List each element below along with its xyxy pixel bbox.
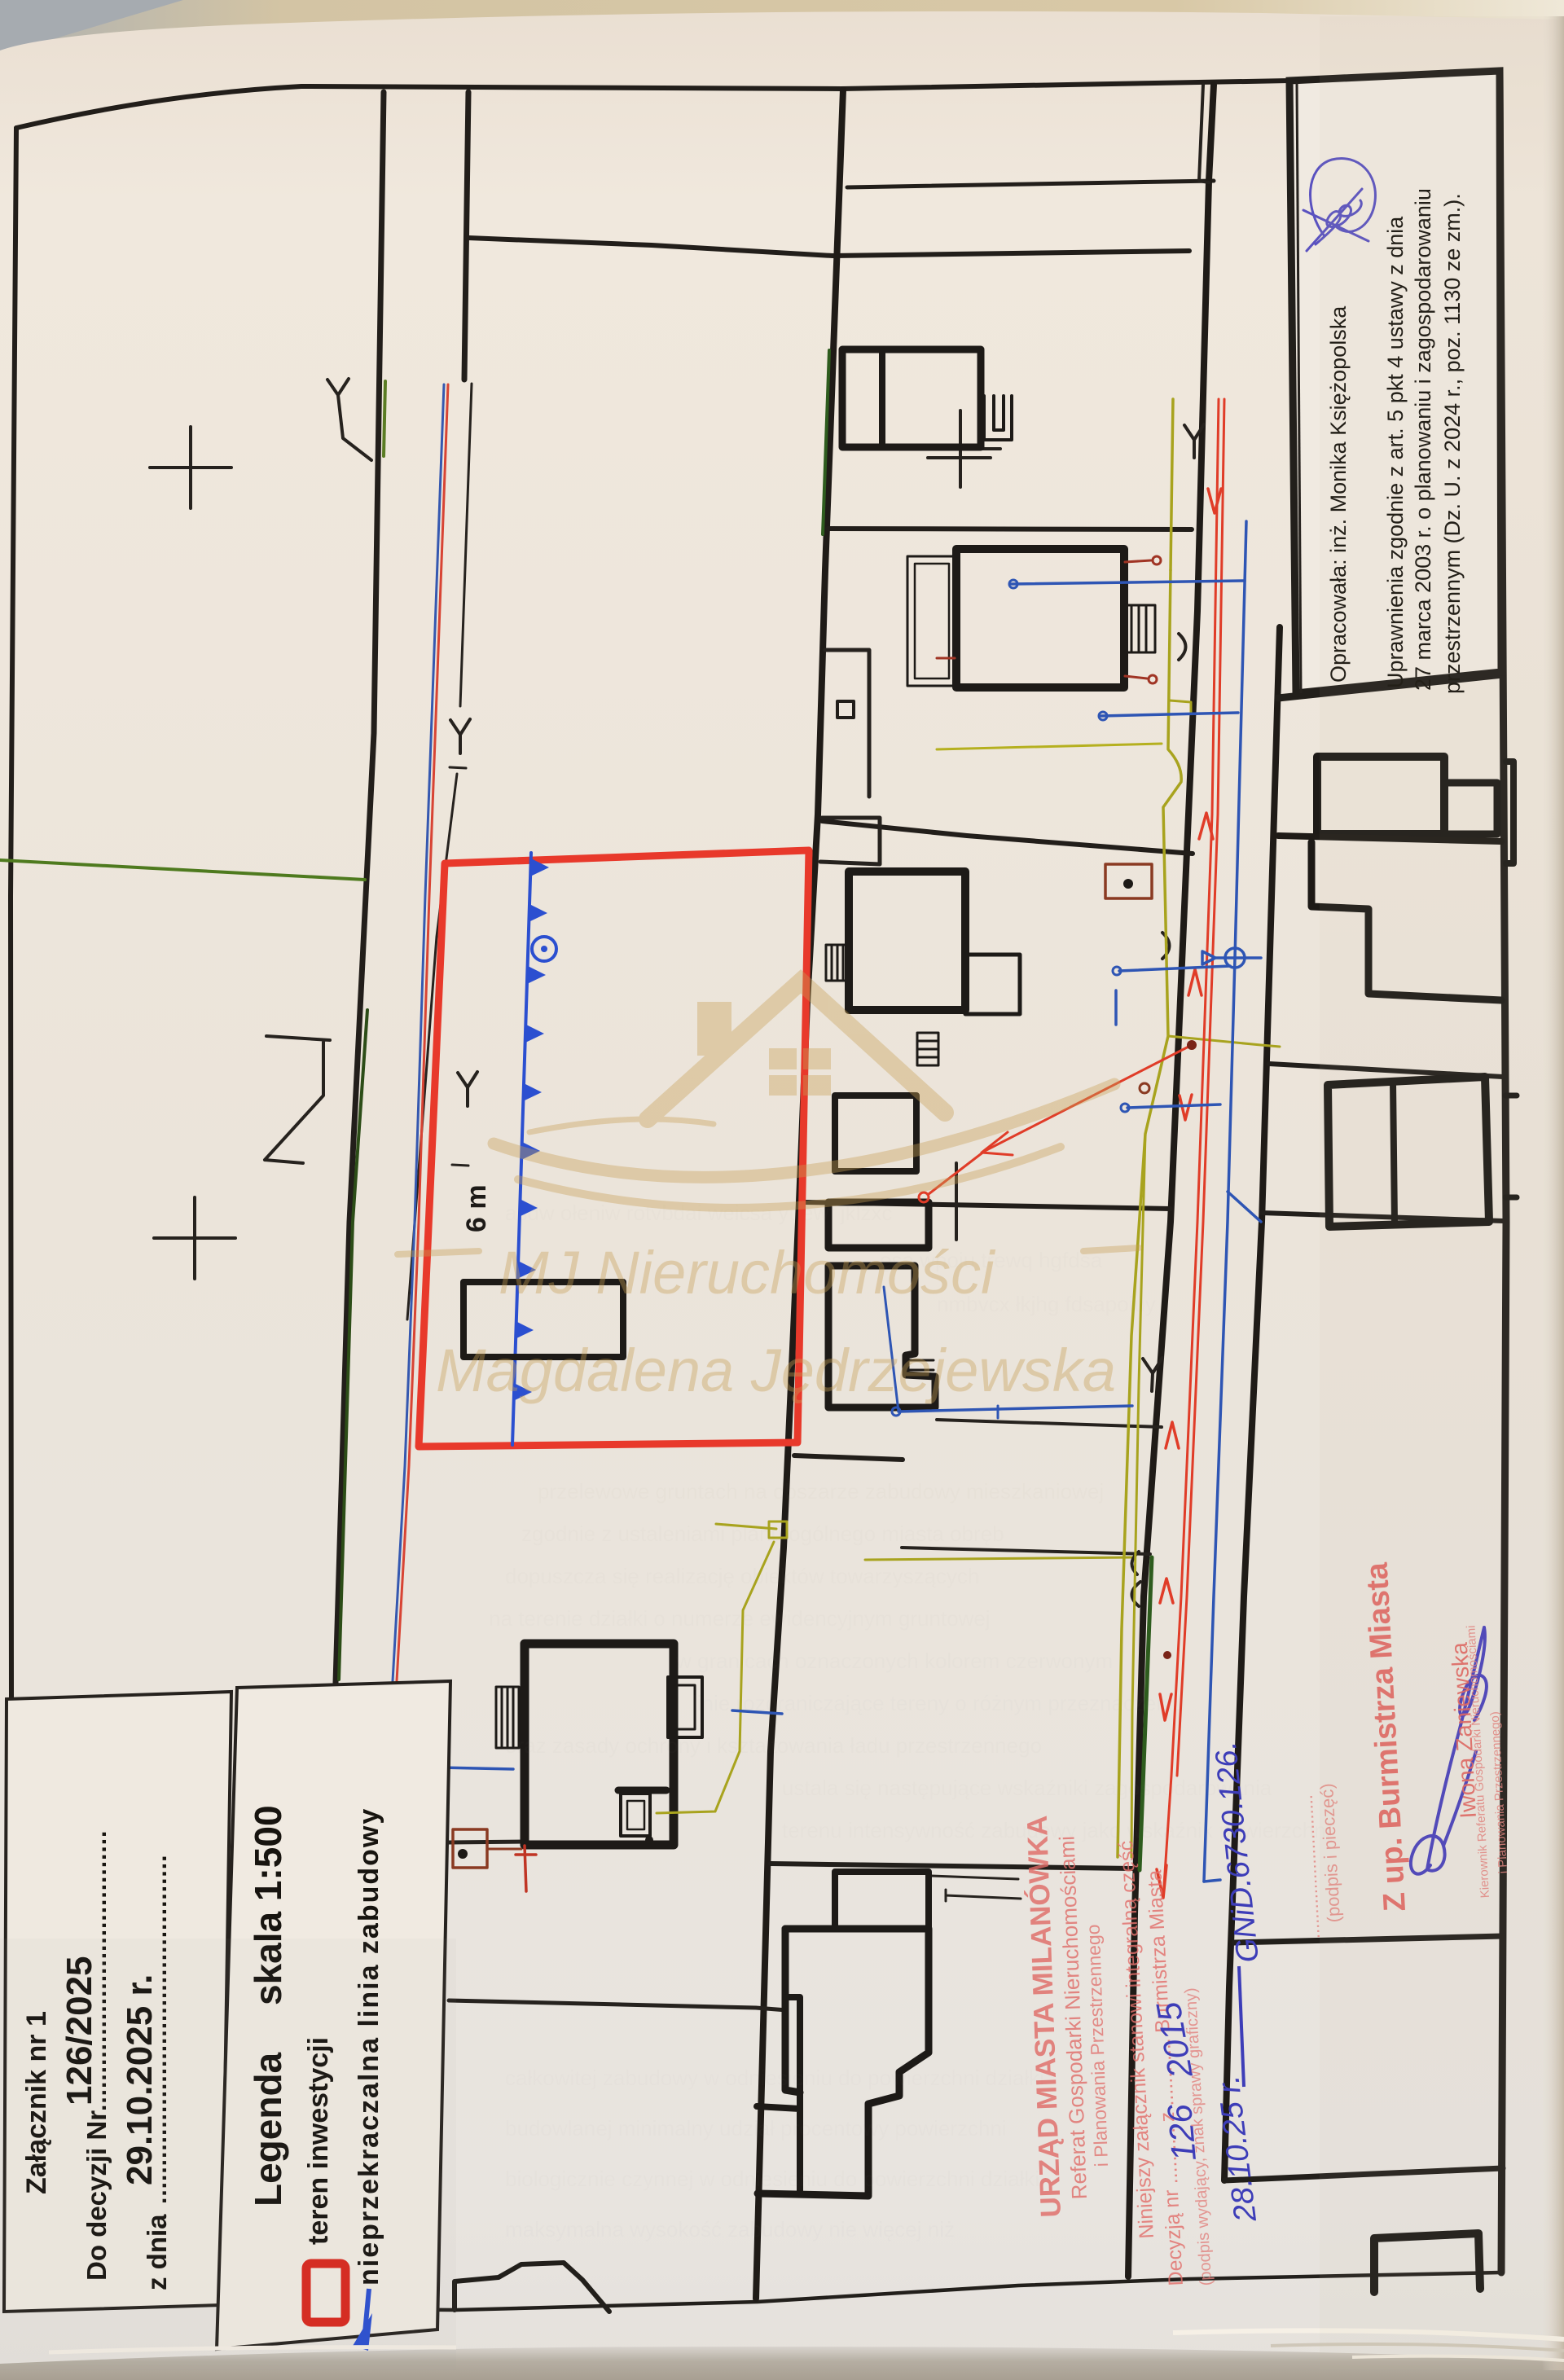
svg-text:maksymalna wysokość zabudowy n: maksymalna wysokość zabudowy nie więcej … xyxy=(505,2217,955,2242)
svg-text:oraz zasady ochrony i kształto: oraz zasady ochrony i kształtowania ładu… xyxy=(505,1733,1042,1758)
svg-text:linie rozgraniczające tereny o: linie rozgraniczające tereny o różnym pr… xyxy=(692,1691,1184,1715)
svg-text:budowlanej minimalny udział pr: budowlanej minimalny udział procentowy p… xyxy=(505,2116,1007,2141)
svg-text:Magdalena Jędrzejewska: Magdalena Jędrzejewska xyxy=(436,1337,1116,1404)
svg-text:na terenie działki o numerze e: na terenie działki o numerze ewidencyjny… xyxy=(489,1606,991,1631)
svg-text:ustala się następujące wskaźni: ustala się następujące wskaźniki zagospo… xyxy=(782,1776,1272,1800)
svg-text:biologicznie czynnej w odniesi: biologicznie czynnej w odniesieniu do po… xyxy=(505,2167,1039,2191)
svg-text:zgodnie z ustaleniami planu og: zgodnie z ustaleniami planu ogólnego mia… xyxy=(521,1522,1004,1546)
svg-text:całkowitej zabudowy w odniesie: całkowitej zabudowy w odniesieniu do pow… xyxy=(505,2066,1044,2090)
svg-text:przelewowe gruntach na obszarz: przelewowe gruntach na obszarze zabudowy… xyxy=(538,1479,1104,1504)
svg-text:dopuszcza się realizację obiek: dopuszcza się realizację obiektów towarz… xyxy=(505,1564,979,1588)
svg-text:6 m: 6 m xyxy=(461,1184,492,1232)
svg-text:w granicach oznaczonych kolore: w granicach oznaczonych kolorem czerwony… xyxy=(675,1649,1113,1673)
svg-text:MJ Nieruchomości: MJ Nieruchomości xyxy=(499,1239,996,1306)
